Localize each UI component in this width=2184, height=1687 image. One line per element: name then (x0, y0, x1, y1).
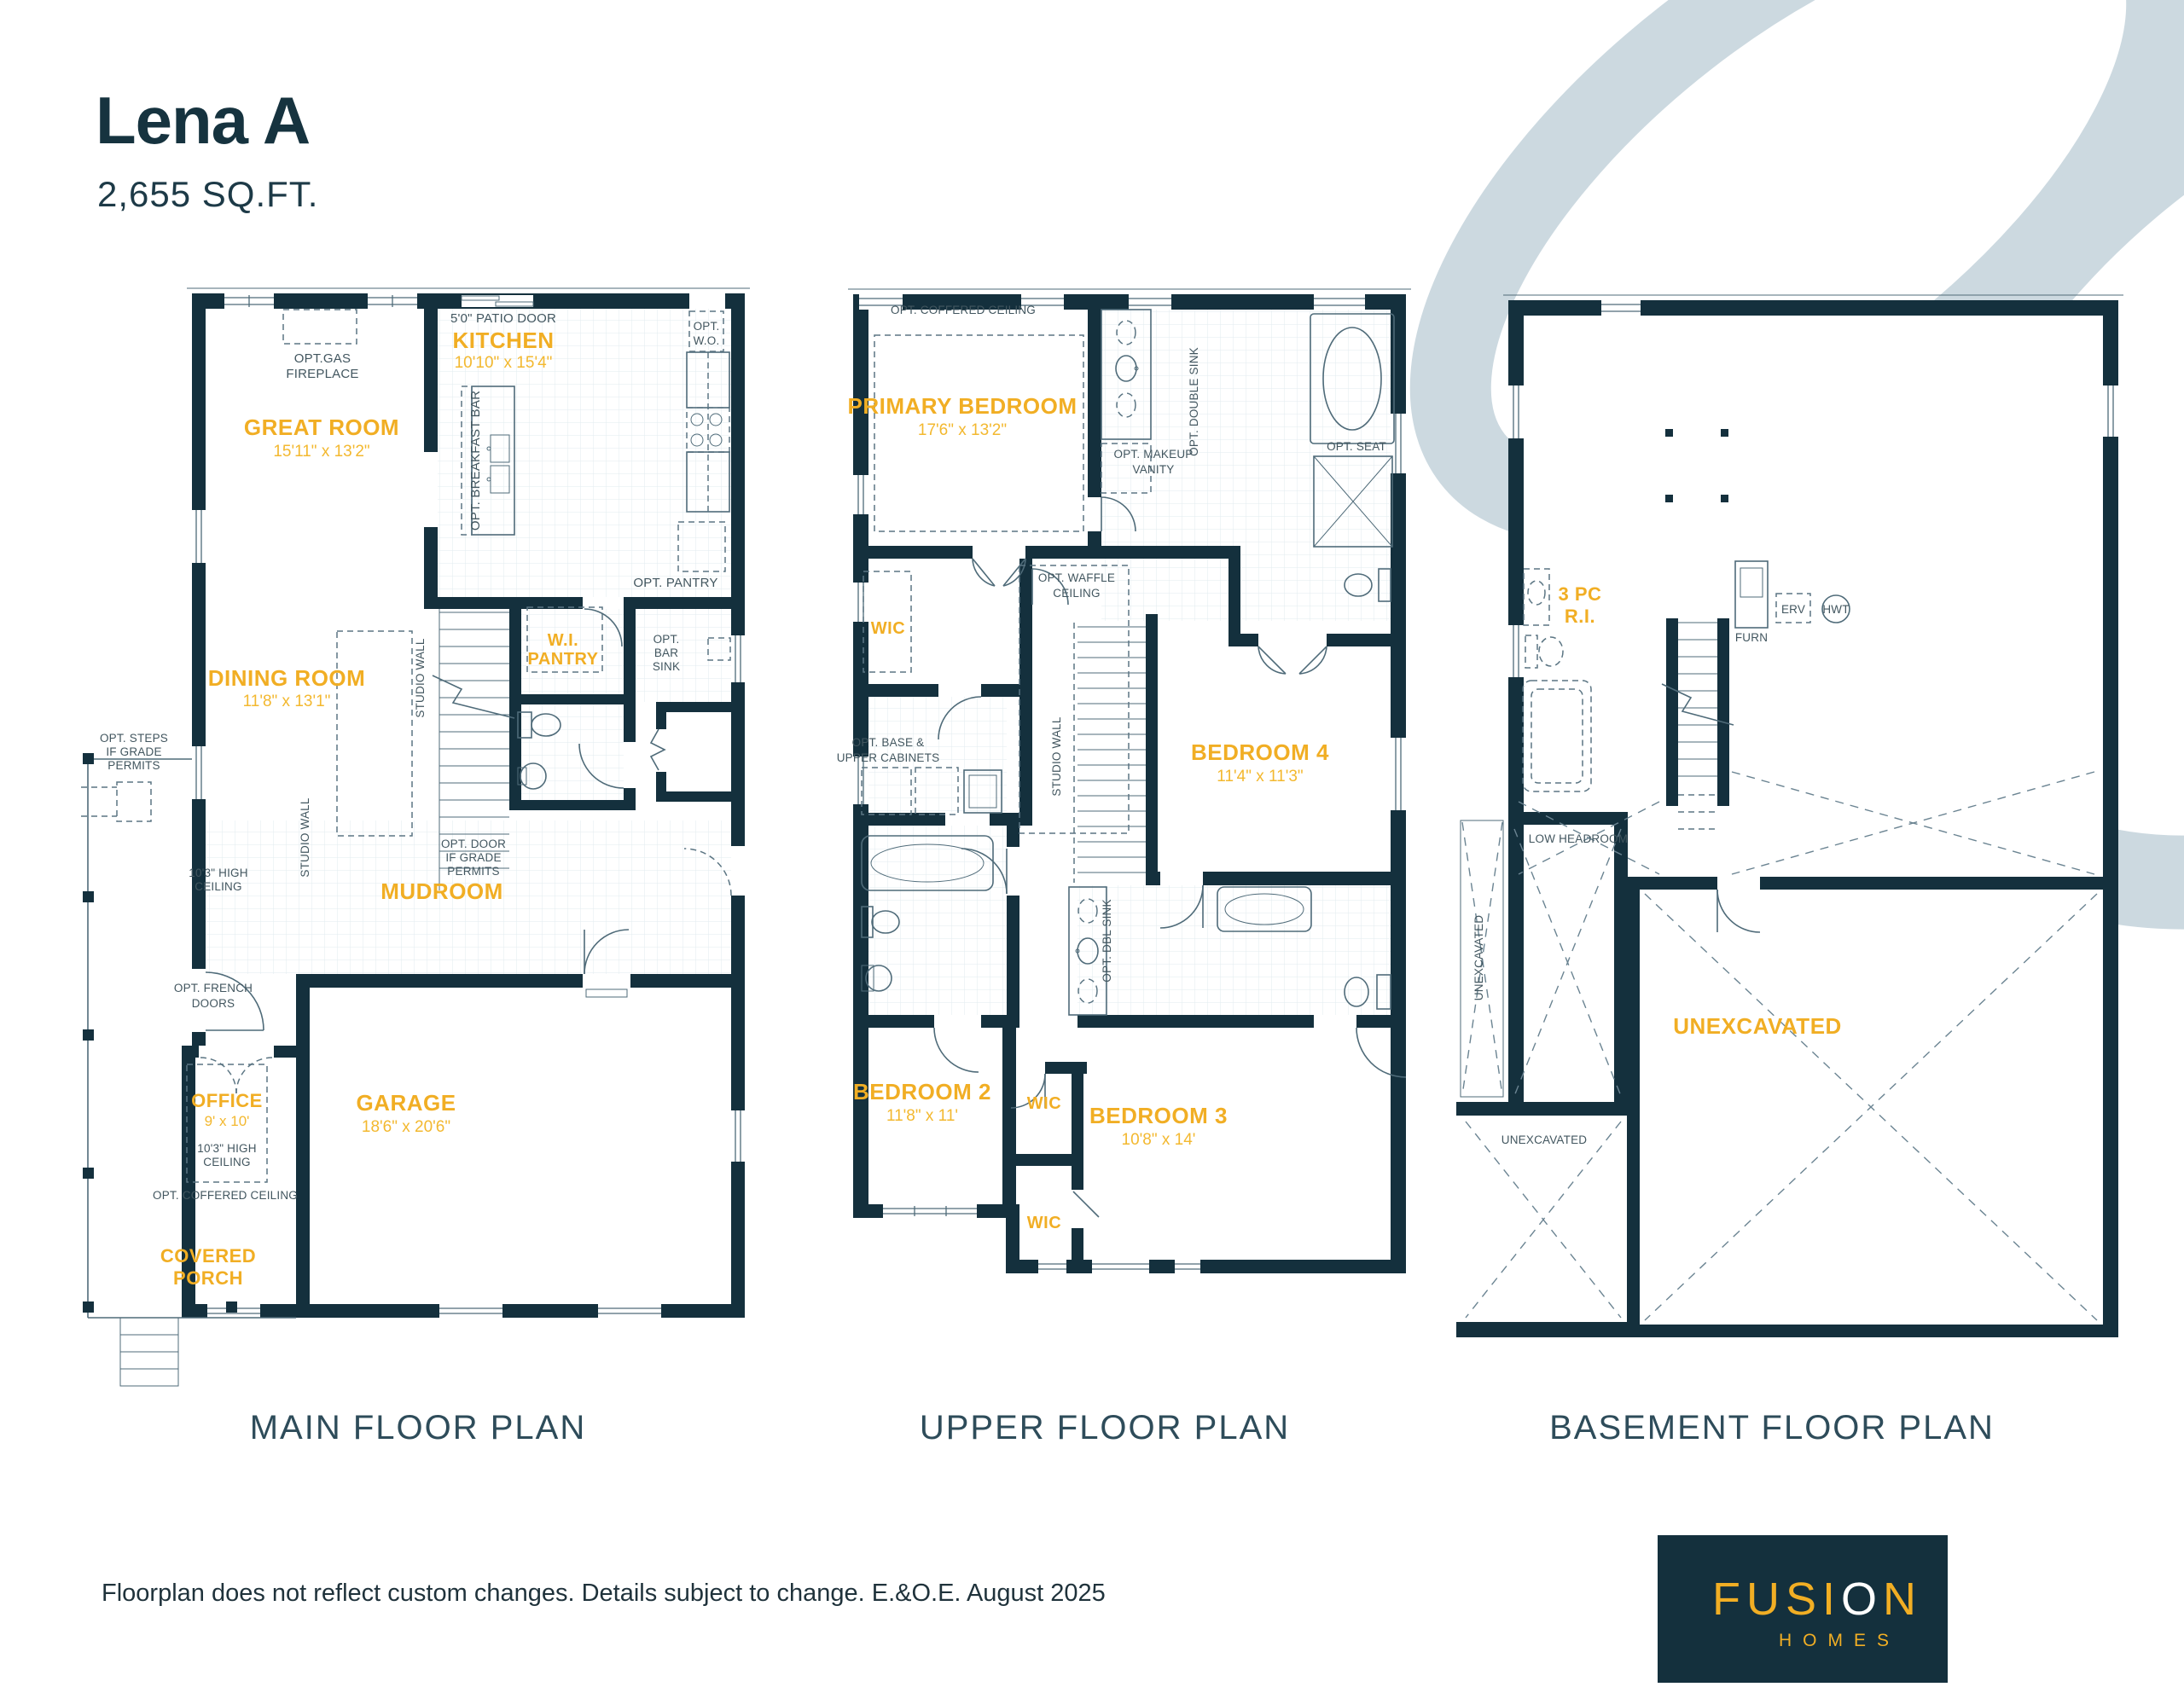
label-dining-room: DINING ROOM (208, 665, 366, 691)
label-opt-door-2: IF GRADE (445, 851, 501, 864)
label-waffle-1: OPT. WAFFLE (1038, 571, 1115, 584)
label-opt-door-1: OPT. DOOR (441, 838, 506, 850)
label-breakfast-bar: OPT. BREAKFAST BAR (468, 391, 483, 530)
basement-floor-plan: 3 PC R.I. FURN ERV HWT LOW HEADROOM UNEX… (1450, 290, 2124, 1356)
label-kitchen: KITCHEN (452, 328, 554, 353)
label-opt-seat: OPT. SEAT (1327, 440, 1386, 453)
label-opt-steps-2: IF GRADE (106, 745, 161, 758)
label-cabinets-1: OPT. BASE & (852, 736, 925, 749)
label-dbl-sink: OPT. DBL SINK (1101, 899, 1113, 982)
fusion-homes-logo: FUSION HOMES (1658, 1535, 1948, 1683)
label-studio-wall-2: STUDIO WALL (299, 797, 311, 878)
label-wic-3: WIC (1027, 1214, 1061, 1232)
label-cabinets-2: UPPER CABINETS (837, 751, 940, 764)
label-wic-2: WIC (1027, 1094, 1061, 1113)
label-bar-sink-1: OPT. (653, 633, 680, 646)
label-bedroom2: BEDROOM 2 (853, 1079, 991, 1104)
label-opt-steps-3: PERMITS (107, 759, 160, 772)
logo-homes-text: HOMES (1779, 1631, 1948, 1651)
label-low-headroom: LOW HEADROOM (1529, 832, 1628, 845)
caption-upper-floor: UPPER FLOOR PLAN (849, 1409, 1361, 1447)
label-opt-wo-1: OPT. (694, 320, 720, 333)
label-wic-primary: WIC (871, 619, 905, 638)
label-opt-door-3: PERMITS (447, 865, 499, 878)
label-opt-steps-1: OPT. STEPS (100, 732, 168, 745)
label-mudroom: MUDROOM (380, 878, 503, 904)
label-unexcavated-main: UNEXCAVATED (1673, 1013, 1842, 1039)
label-double-sink: OPT. DOUBLE SINK (1188, 347, 1200, 456)
label-bedroom4: BEDROOM 4 (1191, 739, 1329, 765)
label-waffle-2: CEILING (1053, 587, 1100, 600)
label-unexcavated-bottom: UNEXCAVATED (1501, 1133, 1588, 1146)
caption-basement-floor: BASEMENT FLOOR PLAN (1516, 1409, 2028, 1447)
label-office: OFFICE (191, 1090, 263, 1111)
label-opt-gas-2: FIREPLACE (286, 367, 358, 381)
caption-main-floor: MAIN FLOOR PLAN (162, 1409, 674, 1447)
label-great-room: GREAT ROOM (244, 415, 399, 440)
label-hwt: HWT (1822, 603, 1849, 616)
label-french-1: OPT. FRENCH (174, 982, 253, 994)
upper-floor-plan: OPT. COFFERED CEILING PRIMARY BEDROOM 17… (836, 286, 1433, 1292)
label-3pc-1: 3 PC (1559, 583, 1602, 605)
label-high-ceiling-2: CEILING (195, 880, 241, 893)
label-opt-pantry: OPT. PANTRY (633, 576, 717, 590)
label-office-ceiling-1: 10'3" HIGH (197, 1142, 256, 1155)
main-floor-plan: OPT.GAS FIREPLACE 5'0" PATIO DOOR KITCHE… (81, 281, 789, 1399)
disclaimer-text: Floorplan does not reflect custom change… (102, 1580, 1106, 1608)
label-patio-door: 5'0" PATIO DOOR (450, 311, 556, 326)
label-makeup-1: OPT. MAKEUP (1114, 448, 1194, 461)
page-title: Lena A (96, 82, 310, 159)
label-garage: GARAGE (356, 1090, 456, 1116)
logo-n: N (1883, 1574, 1922, 1625)
label-erv: ERV (1781, 603, 1805, 616)
label-office-dims: 9' x 10' (205, 1113, 250, 1129)
label-primary-dims: 17'6" x 13'2" (918, 421, 1007, 439)
label-bedroom2-dims: 11'8" x 11' (886, 1107, 958, 1125)
floorplan-page: Lena A 2,655 SQ.FT. (0, 0, 2184, 1687)
label-bedroom3: BEDROOM 3 (1089, 1103, 1228, 1128)
logo-fusi: FUSI (1712, 1574, 1841, 1625)
label-opt-wo-2: W.O. (694, 334, 720, 347)
label-bar-sink-3: SINK (653, 660, 680, 673)
label-3pc-2: R.I. (1565, 606, 1595, 627)
logo-brand-text: FUSION (1712, 1573, 1948, 1626)
label-bar-sink-2: BAR (654, 646, 678, 659)
label-opt-coffered-main: OPT. COFFERED CEILING (153, 1189, 298, 1202)
label-great-room-dims: 15'11" x 13'2" (273, 443, 369, 461)
label-office-ceiling-2: CEILING (203, 1156, 250, 1168)
label-garage-dims: 18'6" x 20'6" (362, 1118, 450, 1136)
label-high-ceiling-1: 10'3" HIGH (189, 867, 247, 879)
label-bedroom3-dims: 10'8" x 14' (1122, 1131, 1196, 1149)
label-bedroom4-dims: 11'4" x 11'3" (1217, 768, 1303, 786)
label-porch-2: PORCH (173, 1267, 243, 1289)
label-studio-wall-1: STUDIO WALL (414, 638, 427, 718)
label-unexcavated-strip: UNEXCAVATED (1472, 915, 1485, 1001)
label-primary: PRIMARY BEDROOM (848, 393, 1077, 419)
label-studio-wall-upper: STUDIO WALL (1050, 716, 1063, 797)
label-opt-coffered-upper: OPT. COFFERED CEILING (891, 304, 1036, 316)
logo-o: O (1841, 1574, 1883, 1625)
label-furn: FURN (1735, 631, 1768, 644)
label-kitchen-dims: 10'10" x 15'4" (455, 354, 553, 372)
label-wi-pantry-1: W.I. (548, 631, 578, 650)
label-dining-dims: 11'8" x 13'1" (243, 693, 331, 710)
label-makeup-2: VANITY (1133, 463, 1175, 476)
label-wi-pantry-2: PANTRY (528, 650, 599, 669)
square-footage: 2,655 SQ.FT. (97, 174, 318, 215)
label-french-2: DOORS (192, 997, 235, 1010)
label-porch-1: COVERED (160, 1245, 256, 1267)
label-opt-gas-1: OPT.GAS (294, 351, 351, 366)
